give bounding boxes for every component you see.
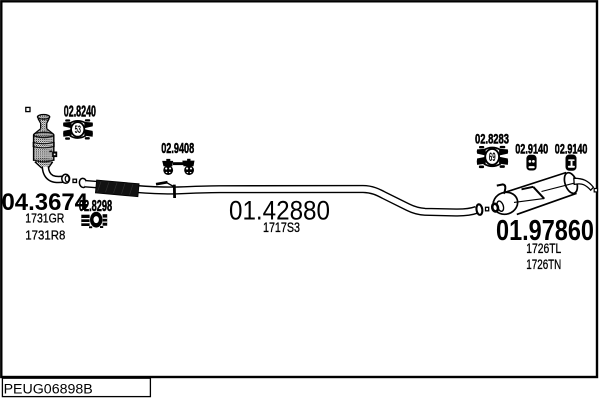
svg-text:1717S3: 1717S3 [263, 219, 300, 235]
svg-text:69: 69 [489, 152, 496, 164]
svg-text:1726TL: 1726TL [526, 241, 561, 256]
svg-text:53: 53 [75, 124, 81, 136]
svg-text:02.8240: 02.8240 [64, 103, 96, 120]
svg-text:1731GR: 1731GR [25, 210, 64, 225]
svg-text:1731R8: 1731R8 [25, 228, 65, 243]
svg-text:02.9140: 02.9140 [515, 141, 548, 156]
svg-text:PEUG06898B: PEUG06898B [4, 381, 93, 397]
svg-text:02.9408: 02.9408 [161, 140, 194, 157]
svg-text:1726TN: 1726TN [526, 257, 561, 272]
svg-text:02.8283: 02.8283 [475, 131, 509, 147]
svg-text:02.9140: 02.9140 [555, 141, 588, 156]
